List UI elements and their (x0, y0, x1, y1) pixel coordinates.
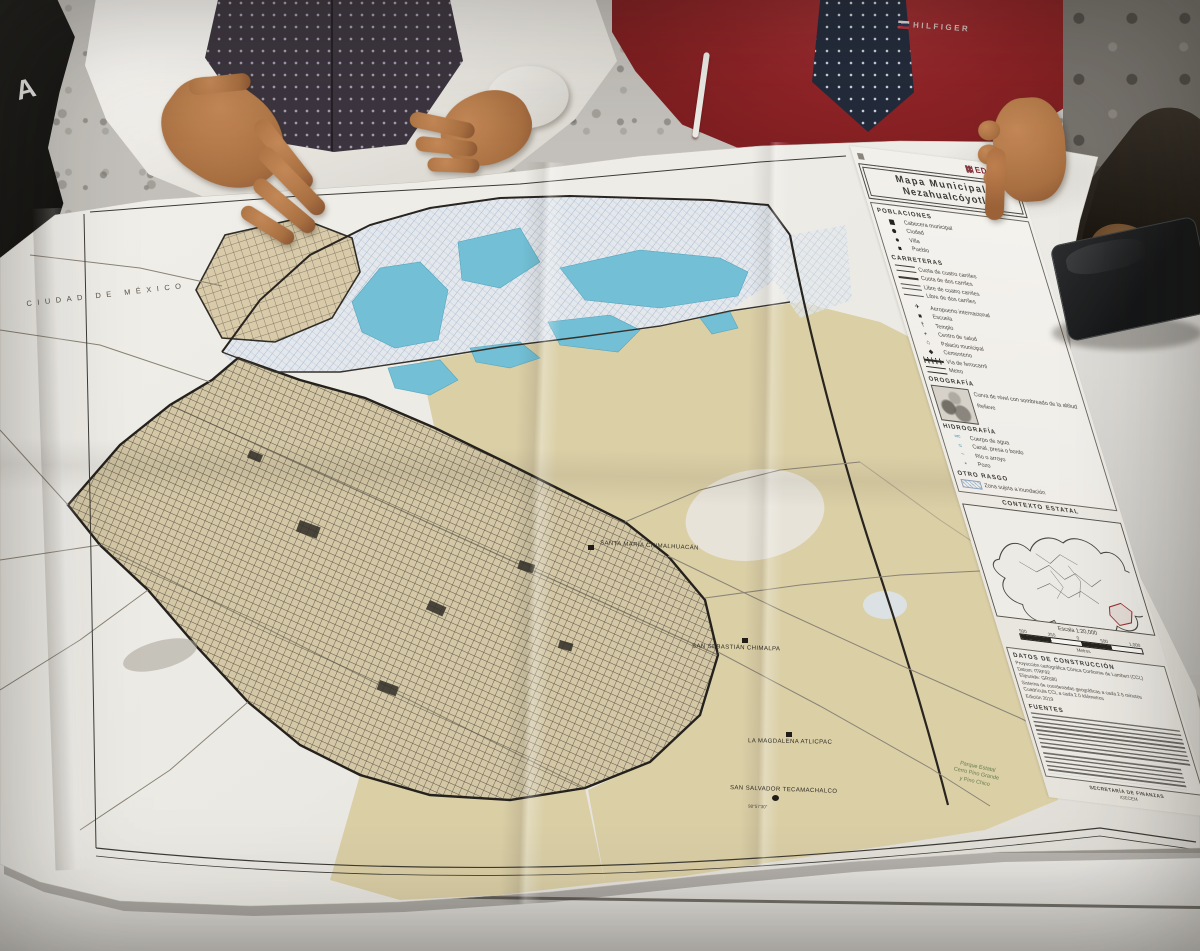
cemetery-icon: ◆ (928, 349, 935, 356)
canal-symbol: ≈ (958, 443, 963, 450)
metro-line-symbol (926, 366, 948, 375)
thumb (985, 148, 1007, 221)
temple-icon: † (920, 322, 925, 329)
coordinate-label: 98°57'30" (748, 804, 767, 810)
scale-tick: 500 (1018, 628, 1027, 634)
plane-icon: ✈ (914, 304, 921, 311)
photo-scene: A HILFIGER (0, 0, 1200, 951)
small-logo-icon (857, 152, 865, 159)
ciudad-symbol (891, 228, 896, 233)
legend-label: Pueblo (912, 247, 931, 255)
scale-tick: 500 (1099, 638, 1108, 644)
place-marker (588, 545, 594, 550)
place-marker (786, 732, 792, 737)
flood-zone-symbol (960, 479, 982, 490)
legend-label: Villa (909, 238, 921, 245)
villa-symbol (895, 238, 899, 242)
pueblo-symbol (898, 247, 902, 251)
road-2lane-symbol (898, 276, 918, 281)
left-person-left-hand (137, 65, 354, 260)
cabecera-symbol (888, 219, 895, 225)
water-body-symbol: ≈≈ (954, 434, 961, 441)
scale-tick: 250 (1047, 631, 1056, 637)
legend-label: Metro (949, 369, 965, 376)
place-marker (772, 795, 779, 801)
scale-tick: 0 (1076, 635, 1080, 641)
well-symbol: • (964, 461, 967, 468)
place-marker (742, 638, 748, 643)
health-icon: + (923, 331, 928, 338)
road-free-2lane-symbol (904, 294, 924, 297)
palace-icon: ⌂ (926, 340, 932, 347)
railway-line-symbol (924, 359, 944, 364)
finger (427, 157, 479, 173)
school-icon: ■ (918, 313, 924, 320)
river-symbol: ~ (960, 452, 965, 459)
right-person-hand (968, 87, 1081, 226)
left-person-right-hand (406, 62, 578, 198)
small-pond (863, 591, 907, 619)
